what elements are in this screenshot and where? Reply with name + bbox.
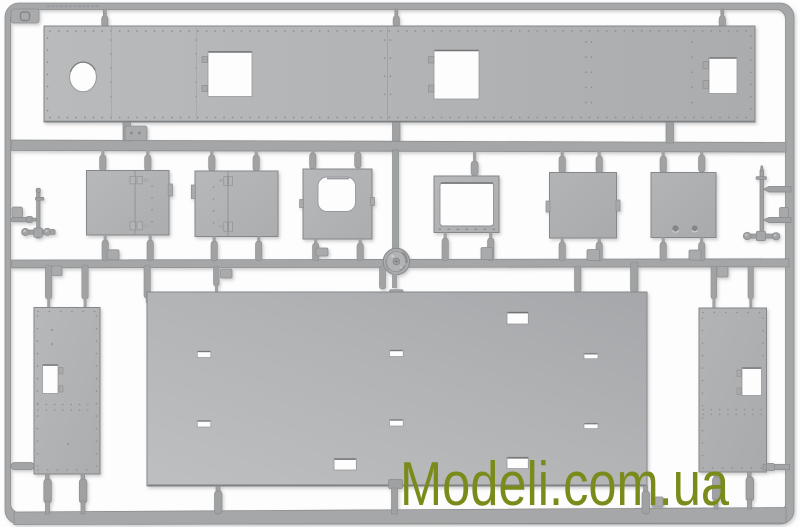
svg-text:Modeli.com.ua: Modeli.com.ua xyxy=(400,450,729,519)
